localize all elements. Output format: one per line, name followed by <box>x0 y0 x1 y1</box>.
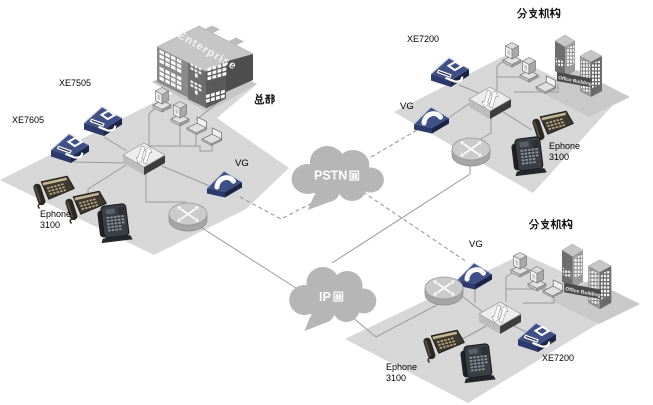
svg-text:VG: VG <box>469 239 483 250</box>
svg-text:VG: VG <box>400 101 414 112</box>
svg-text:XE7505: XE7505 <box>59 78 91 88</box>
svg-text:XE7200: XE7200 <box>407 34 439 44</box>
svg-text:XE7200: XE7200 <box>542 353 574 363</box>
svg-text:Ephone: Ephone <box>386 362 417 372</box>
svg-text:VG: VG <box>235 158 249 169</box>
svg-text:PSTN: PSTN <box>314 169 347 183</box>
svg-text:IP: IP <box>319 290 331 304</box>
svg-text:Ephone: Ephone <box>549 141 580 151</box>
svg-text:3100: 3100 <box>40 220 60 230</box>
svg-text:3100: 3100 <box>549 152 569 162</box>
svg-text:XE7605: XE7605 <box>12 115 44 125</box>
svg-text:Ephone: Ephone <box>40 209 71 219</box>
svg-text:3100: 3100 <box>386 373 406 383</box>
